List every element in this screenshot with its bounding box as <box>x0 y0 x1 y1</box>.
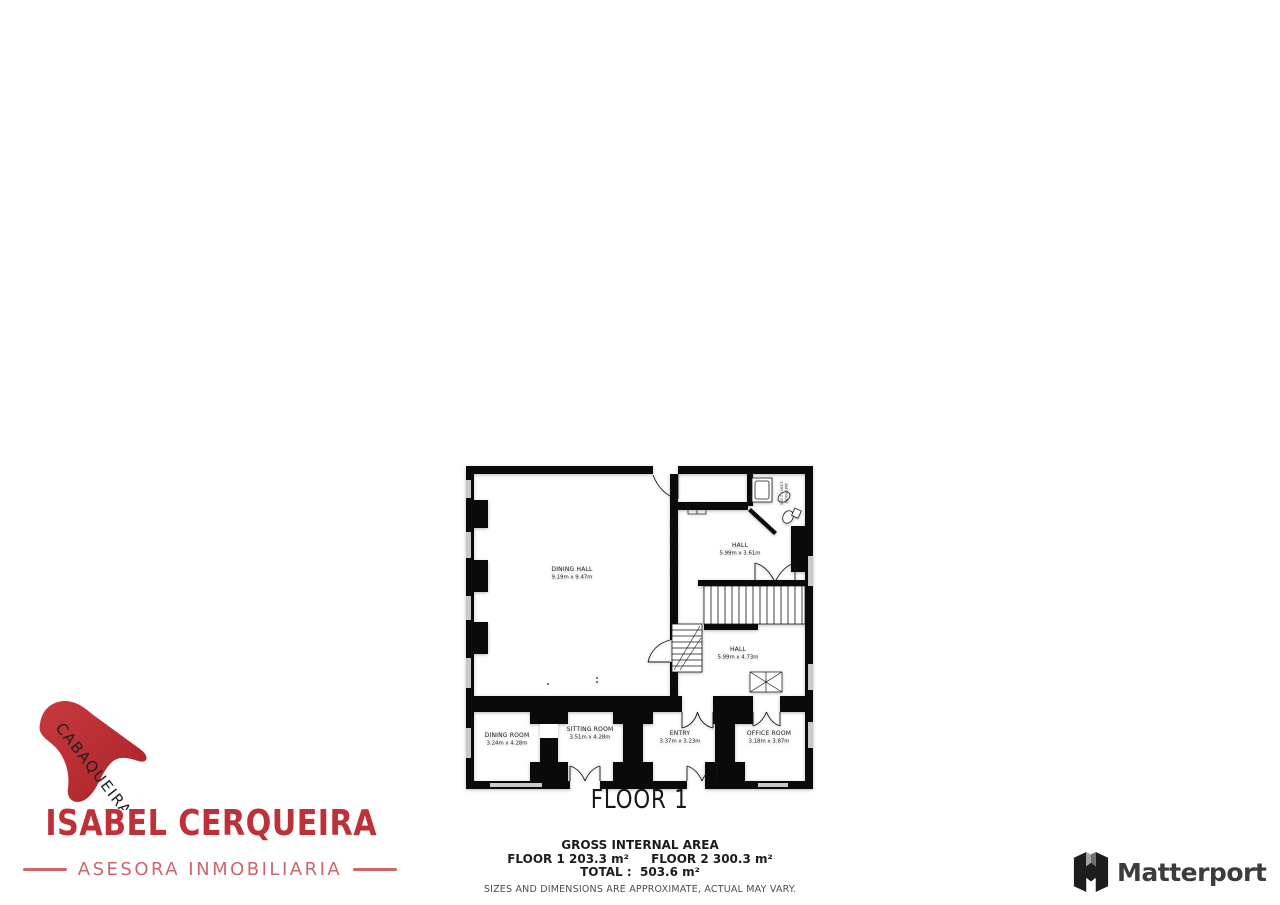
svg-text:BATHROOM: BATHROOM <box>784 483 788 503</box>
room-dims-dining-hall: 9.19m x 9.47m <box>551 575 592 581</box>
room-label-dining-room: DINING ROOM <box>485 732 530 739</box>
agency-tagline: ASESORA INMOBILIARIA <box>14 859 406 880</box>
roof-icon: CABAQUEIRA <box>28 694 162 810</box>
room-label-entry: ENTRY <box>670 730 691 737</box>
room-dims-sitting-room: 3.51m x 4.28m <box>569 735 610 741</box>
matterport-label: Matterport <box>1117 858 1266 887</box>
room-dims-hall-lower: 5.99m x 4.73m <box>717 655 758 661</box>
room-label-sitting-room: SITTING ROOM <box>567 726 614 733</box>
plan-dots <box>547 677 598 685</box>
floor1-area: FLOOR 1 203.3 m² <box>507 853 629 867</box>
staircase-main <box>704 586 805 624</box>
svg-text:1.95m x 2.20m: 1.95m x 2.20m <box>779 481 783 505</box>
room-dims-office-room: 3.18m x 3.87m <box>748 739 789 745</box>
matterport-icon <box>1072 851 1110 893</box>
staircase-lower <box>672 624 702 672</box>
tagline-dash-left <box>23 868 67 871</box>
room-label-dining-hall: DINING HALL <box>551 566 593 573</box>
wall-openings <box>540 724 558 738</box>
floor-plan-drawing: DINING HALL 9.19m x 9.47m HALL 5.99m x 3… <box>466 466 814 790</box>
room-label-bathroom: BATHROOM 1.95m x 2.20m <box>779 481 788 505</box>
room-dims-dining-room: 3.24m x 4.28m <box>486 741 527 747</box>
agency-logo: CABAQUEIRA ISABEL CERQUEIRA ASESORA INMO… <box>0 690 420 905</box>
room-dims-entry: 3.37m x 3.23m <box>659 739 700 745</box>
matterport-logo: Matterport <box>1072 851 1266 893</box>
floor-plan-sheet: DINING HALL 9.19m x 9.47m HALL 5.99m x 3… <box>0 0 1280 905</box>
room-dims-hall-upper: 5.99m x 3.61m <box>719 551 760 557</box>
agency-name: ISABEL CERQUEIRA <box>45 803 374 844</box>
floor2-area: FLOOR 2 300.3 m² <box>651 853 773 867</box>
tagline-dash-right <box>353 868 397 871</box>
room-label-hall-upper: HALL <box>732 542 749 549</box>
floor-title: FLOOR 1 <box>466 785 814 815</box>
room-label-hall-lower: HALL <box>730 646 747 653</box>
floor-plan: DINING HALL 9.19m x 9.47m HALL 5.99m x 3… <box>466 466 814 790</box>
room-label-office-room: OFFICE ROOM <box>747 730 791 737</box>
